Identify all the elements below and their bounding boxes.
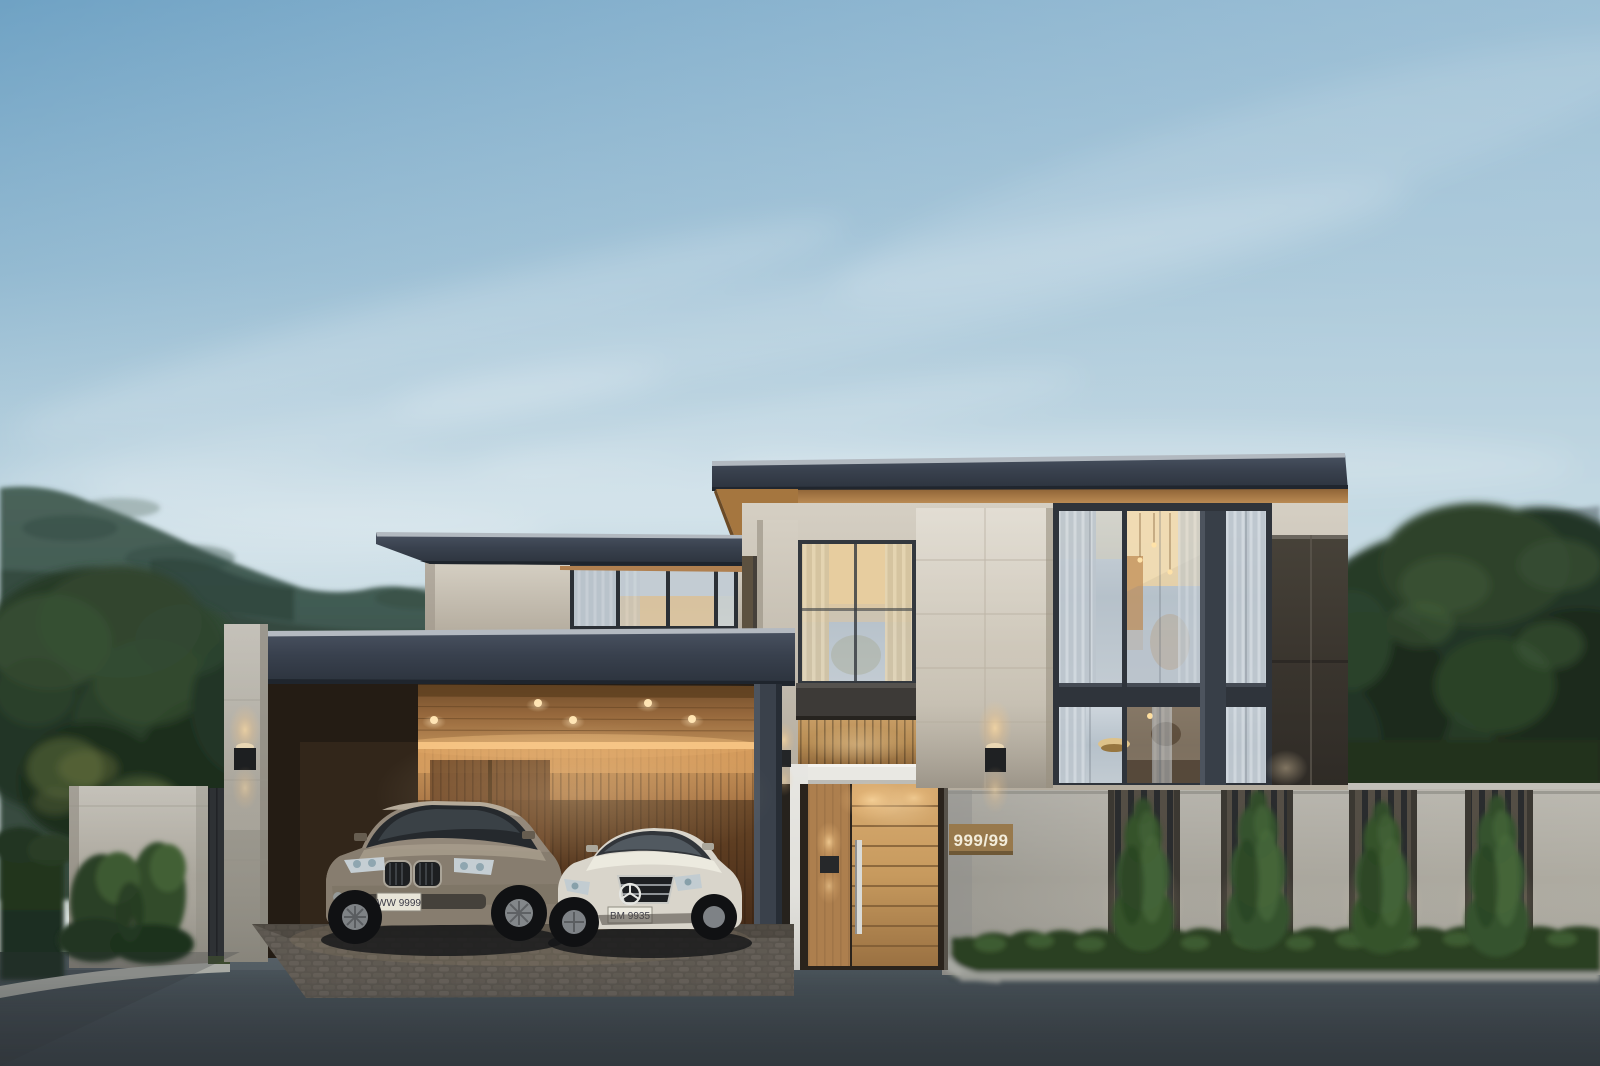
- svg-text:WW 9999: WW 9999: [377, 898, 421, 909]
- svg-text:999/99: 999/99: [954, 831, 1009, 850]
